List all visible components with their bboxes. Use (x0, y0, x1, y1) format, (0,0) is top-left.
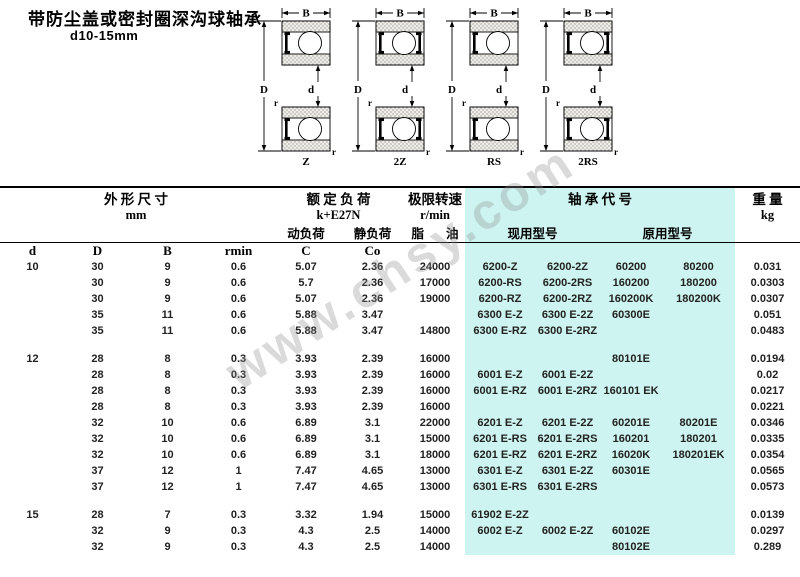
header-col-Co: Co (340, 243, 405, 260)
table-cell (662, 523, 735, 539)
table-cell (405, 307, 465, 323)
table-cell: 0.0354 (735, 447, 800, 463)
fillet-r-label: r (614, 147, 618, 157)
table-cell: 3.1 (340, 431, 405, 447)
table-cell (662, 463, 735, 479)
table-cell: 28 (65, 383, 130, 399)
figure-label: RS (487, 156, 501, 167)
table-row: 2880.33.932.39160000.0221 (0, 399, 800, 415)
table-cell: 3.93 (272, 383, 340, 399)
table-cell (662, 399, 735, 415)
table-cell: 28 (65, 351, 130, 367)
table-cell: 0.0565 (735, 463, 800, 479)
table-cell: 160200K (600, 291, 662, 307)
table-cell: 6201 E-2RS (535, 431, 600, 447)
header-load-unit: k+E27N (272, 208, 405, 223)
table-row: 2880.33.932.39160006001 E-RZ6001 E-2RZ16… (0, 383, 800, 399)
table-cell: 6201 E-RZ (465, 447, 535, 463)
header-letter-row: d D B rmin C Co (0, 243, 800, 260)
table-cell: 5.7 (272, 275, 340, 291)
table-cell: 0.0483 (735, 323, 800, 339)
table-row: 32100.66.893.1180006201 E-RZ6201 E-2RZ16… (0, 447, 800, 463)
table-cell: 15000 (405, 431, 465, 447)
table-cell (535, 539, 600, 555)
table-cell: 2.39 (340, 399, 405, 415)
table-cell: 15 (0, 507, 65, 523)
header-empty-cell (0, 223, 272, 243)
dim-outer-label: D (260, 84, 268, 96)
table-cell: 18000 (405, 447, 465, 463)
table-cell: 9 (130, 275, 205, 291)
table-cell: 3.32 (272, 507, 340, 523)
fillet-r-label: r (556, 98, 560, 108)
table-cell: 4.65 (340, 479, 405, 495)
dim-outer-label: D (448, 84, 456, 96)
table-cell: 2.39 (340, 383, 405, 399)
dim-bore-label: d (308, 84, 314, 96)
figure-lines (258, 8, 330, 151)
header-unit-row: mm k+E27N r/min kg (0, 208, 800, 223)
bearing-table: 外 形 尺 寸 额 定 负 荷 极限转速 轴 承 代 号 重 量 mm k+E2… (0, 186, 800, 555)
table-cell: 9 (130, 539, 205, 555)
header-col-D: D (65, 243, 130, 260)
table-cell: 60200 (600, 259, 662, 275)
table-cell: 60102E (600, 523, 662, 539)
table-cell: 0.3 (205, 383, 272, 399)
table-cell (0, 447, 65, 463)
table-cell (662, 539, 735, 555)
table-cell: 4.65 (340, 463, 405, 479)
table-cell: 0.0297 (735, 523, 800, 539)
table-cell: 32 (65, 431, 130, 447)
table-cell: 0.6 (205, 431, 272, 447)
spacer-row (0, 339, 800, 351)
table-cell: 6300 E-2RZ (535, 323, 600, 339)
table-cell: 6301 E-RS (465, 479, 535, 495)
table-cell: 3.47 (340, 307, 405, 323)
table-cell: 0.3 (205, 367, 272, 383)
table-cell: 6301 E-Z (465, 463, 535, 479)
table-cell: 80201E (662, 415, 735, 431)
table-cell: 60201E (600, 415, 662, 431)
table-cell (0, 291, 65, 307)
table-cell: 11 (130, 323, 205, 339)
table-cell: 32 (65, 523, 130, 539)
table-cell: 7.47 (272, 463, 340, 479)
table-cell: 32 (65, 415, 130, 431)
table-cell: 2.5 (340, 523, 405, 539)
table-cell: 9 (130, 291, 205, 307)
table-cell (662, 507, 735, 523)
table-cell (662, 307, 735, 323)
figure-label: Z (302, 156, 309, 167)
table-cell (600, 323, 662, 339)
table-cell (465, 351, 535, 367)
table-cell: 3.1 (340, 415, 405, 431)
header-code-original: 原用型号 (600, 223, 735, 243)
fillet-r-label: r (368, 98, 372, 108)
bearing-figure: B D d r r 2RS (536, 5, 626, 167)
table-cell (0, 307, 65, 323)
dim-bore-label: d (402, 84, 408, 96)
table-cell: 8 (130, 351, 205, 367)
table-cell: 15000 (405, 507, 465, 523)
spacer-row (0, 495, 800, 507)
table-cell: 10 (130, 447, 205, 463)
header-empty-cell (735, 243, 800, 260)
table-cell: 8 (130, 399, 205, 415)
table-cell: 0.6 (205, 259, 272, 275)
table-cell: 6.89 (272, 431, 340, 447)
table-cell: 0.0573 (735, 479, 800, 495)
table-cell: 13000 (405, 479, 465, 495)
table-cell: 2.36 (340, 291, 405, 307)
table-cell: 32 (65, 447, 130, 463)
table-cell: 3.47 (340, 323, 405, 339)
table-cell: 160200 (600, 275, 662, 291)
header-speed-grease: 脂 (411, 227, 424, 241)
dim-width-label: B (302, 8, 310, 20)
table-cell: 6200-2Z (535, 259, 600, 275)
table-cell (0, 399, 65, 415)
table-cell: 6200-RZ (465, 291, 535, 307)
table-cell: 60301E (600, 463, 662, 479)
table-cell: 0.3 (205, 523, 272, 539)
header-empty-cell (405, 243, 465, 260)
table-cell: 22000 (405, 415, 465, 431)
header-col-B: B (130, 243, 205, 260)
table-cell: 0.6 (205, 307, 272, 323)
figure-label: 2Z (394, 156, 407, 167)
table-cell (0, 415, 65, 431)
header-weight-group: 重 量 (735, 187, 800, 208)
table-cell: 0.0307 (735, 291, 800, 307)
left-shield-icon (473, 33, 479, 140)
header-speed-oil: 油 (446, 227, 459, 241)
table-cell: 0.3 (205, 351, 272, 367)
table-cell: 37 (65, 479, 130, 495)
table-cell: 5.88 (272, 323, 340, 339)
table-cell: 30 (65, 275, 130, 291)
table-cell: 60300E (600, 307, 662, 323)
table-cell: 30 (65, 291, 130, 307)
table-cell (600, 507, 662, 523)
table-cell (535, 399, 600, 415)
header-col-rmin: rmin (205, 243, 272, 260)
table-cell: 3.1 (340, 447, 405, 463)
header-col-C: C (272, 243, 340, 260)
header-col-d: d (0, 243, 65, 260)
table-row: 3090.65.072.36190006200-RZ6200-2RZ160200… (0, 291, 800, 307)
left-shield-icon (379, 33, 385, 140)
table-cell: 6001 E-RZ (465, 383, 535, 399)
table-cell (535, 507, 600, 523)
table-cell: 180200K (662, 291, 735, 307)
table-cell: 28 (65, 399, 130, 415)
fillet-r-label: r (332, 147, 336, 157)
table-cell (0, 539, 65, 555)
right-shield-icon (604, 33, 610, 140)
table-cell: 12 (130, 479, 205, 495)
fillet-r-label: r (462, 98, 466, 108)
table-cell: 6001 E-2RZ (535, 383, 600, 399)
table-cell (662, 351, 735, 367)
table-cell: 12 (130, 463, 205, 479)
table-cell: 0.051 (735, 307, 800, 323)
header-empty-cell (465, 208, 735, 223)
header-weight-unit: kg (735, 208, 800, 223)
table-row: 3290.34.32.5140006002 E-Z6002 E-2Z60102E… (0, 523, 800, 539)
table-cell: 80200 (662, 259, 735, 275)
table-cell: 14800 (405, 323, 465, 339)
table-cell: 0.6 (205, 447, 272, 463)
table-row: 371217.474.65130006301 E-Z6301 E-2Z60301… (0, 463, 800, 479)
table-cell: 4.3 (272, 539, 340, 555)
table-row: 3290.34.32.51400080102E0.289 (0, 539, 800, 555)
table-cell: 0.0139 (735, 507, 800, 523)
header-group-row: 外 形 尺 寸 额 定 负 荷 极限转速 轴 承 代 号 重 量 (0, 187, 800, 208)
table-row: 32100.66.893.1150006201 E-RS6201 E-2RS16… (0, 431, 800, 447)
table-cell: 5.07 (272, 259, 340, 275)
table-cell: 3.93 (272, 367, 340, 383)
table-cell: 61902 E-2Z (465, 507, 535, 523)
table-cell: 80102E (600, 539, 662, 555)
table-cell: 0.0335 (735, 431, 800, 447)
table-cell: 14000 (405, 539, 465, 555)
table-cell: 10 (0, 259, 65, 275)
table-cell: 6201 E-2RZ (535, 447, 600, 463)
table-cell: 0.02 (735, 367, 800, 383)
table-cell: 0.6 (205, 415, 272, 431)
table-cell: 0.3 (205, 507, 272, 523)
dim-width-label: B (490, 8, 498, 20)
left-shield-icon (567, 33, 573, 140)
table-cell: 30 (65, 259, 130, 275)
table-cell (465, 399, 535, 415)
table-cell: 6201 E-RS (465, 431, 535, 447)
table-cell (662, 383, 735, 399)
table-cell: 0.0194 (735, 351, 800, 367)
table-cell: 160201 (600, 431, 662, 447)
table-cell: 0.289 (735, 539, 800, 555)
table-cell: 6200-2RS (535, 275, 600, 291)
bearing-figure: B D d r r 2Z (348, 5, 438, 167)
fillet-r-label: r (426, 147, 430, 157)
table-cell: 0.0221 (735, 399, 800, 415)
table-row: 3090.65.72.36170006200-RS6200-2RS1602001… (0, 275, 800, 291)
table-cell: 2.36 (340, 275, 405, 291)
table-cell: 0.0346 (735, 415, 800, 431)
table-cell: 8 (130, 383, 205, 399)
table-cell: 180201 (662, 431, 735, 447)
table-cell: 180200 (662, 275, 735, 291)
table-cell: 80101E (600, 351, 662, 367)
header-sub-row: 动负荷 静负荷 脂油 现用型号 原用型号 (0, 223, 800, 243)
table-cell (600, 399, 662, 415)
table-cell (600, 367, 662, 383)
table-cell: 10 (130, 431, 205, 447)
table-cell: 10 (130, 415, 205, 431)
table-cell (465, 539, 535, 555)
fillet-r-label: r (274, 98, 278, 108)
header-empty-cell (465, 243, 735, 260)
table-cell: 17000 (405, 275, 465, 291)
table-cell: 16000 (405, 399, 465, 415)
table-cell (0, 275, 65, 291)
table-cell: 2.36 (340, 259, 405, 275)
table-cell: 0.6 (205, 275, 272, 291)
table-row: 152870.33.321.941500061902 E-2Z0.0139 (0, 507, 800, 523)
header-code-current: 现用型号 (465, 223, 600, 243)
table-cell: 5.88 (272, 307, 340, 323)
header-dims-group: 外 形 尺 寸 (0, 187, 272, 208)
table-cell (0, 367, 65, 383)
table-cell (0, 431, 65, 447)
table-cell: 6001 E-Z (465, 367, 535, 383)
table-cell: 6300 E-RZ (465, 323, 535, 339)
table-cell (0, 479, 65, 495)
table-cell (662, 479, 735, 495)
figure-lines (352, 8, 424, 151)
table-cell (0, 323, 65, 339)
table-cell: 6.89 (272, 415, 340, 431)
table-cell: 28 (65, 507, 130, 523)
table-cell: 160101 EK (600, 383, 662, 399)
table-row: 32100.66.893.1220006201 E-Z6201 E-2Z6020… (0, 415, 800, 431)
table-cell: 4.3 (272, 523, 340, 539)
table-cell: 32 (65, 539, 130, 555)
fillet-r-label: r (520, 147, 524, 157)
table-cell: 0.6 (205, 291, 272, 307)
table-cell: 1.94 (340, 507, 405, 523)
header-speed-unit: r/min (405, 208, 465, 223)
header-empty-cell (735, 223, 800, 243)
table-cell: 0.0303 (735, 275, 800, 291)
table-header: 外 形 尺 寸 额 定 负 荷 极限转速 轴 承 代 号 重 量 mm k+E2… (0, 187, 800, 259)
table-cell: 37 (65, 463, 130, 479)
figure-label: 2RS (578, 156, 598, 167)
table-cell: 0.031 (735, 259, 800, 275)
bearing-figure: B D d r r RS (442, 5, 532, 167)
table-cell: 6200-Z (465, 259, 535, 275)
table-cell (0, 383, 65, 399)
dim-bore-label: d (590, 84, 596, 96)
header-load-dynamic: 动负荷 (272, 223, 340, 243)
dim-bore-label: d (496, 84, 502, 96)
figure-lines (540, 8, 612, 151)
table-cell: 0.3 (205, 399, 272, 415)
table-cell: 6.89 (272, 447, 340, 463)
table-cell (535, 351, 600, 367)
table-cell: 6001 E-2Z (535, 367, 600, 383)
header-speed-types: 脂油 (405, 223, 465, 243)
table-cell: 6301 E-2RS (535, 479, 600, 495)
table-cell: 12 (0, 351, 65, 367)
table-row: 371217.474.65130006301 E-RS6301 E-2RS0.0… (0, 479, 800, 495)
table-cell (0, 523, 65, 539)
page-title: 带防尘盖或密封圈深沟球轴承 (28, 5, 262, 30)
dim-width-label: B (396, 8, 404, 20)
header-load-group: 额 定 负 荷 (272, 187, 405, 208)
table-cell: 6201 E-2Z (535, 415, 600, 431)
table-cell: 7.47 (272, 479, 340, 495)
table-cell: 180201EK (662, 447, 735, 463)
header-code-group: 轴 承 代 号 (465, 187, 735, 208)
header-speed-group: 极限转速 (405, 187, 465, 208)
table-cell: 0.3 (205, 539, 272, 555)
table-cell: 35 (65, 307, 130, 323)
table-cell: 8 (130, 367, 205, 383)
table-cell: 2.39 (340, 351, 405, 367)
table-cell: 0.6 (205, 323, 272, 339)
table-cell: 16000 (405, 383, 465, 399)
table-cell: 7 (130, 507, 205, 523)
table-cell: 16000 (405, 367, 465, 383)
table-cell: 16020K (600, 447, 662, 463)
table-cell: 2.39 (340, 367, 405, 383)
table-cell: 9 (130, 259, 205, 275)
table-cell: 24000 (405, 259, 465, 275)
table-cell: 13000 (405, 463, 465, 479)
table-cell: 6002 E-Z (465, 523, 535, 539)
dim-width-label: B (584, 8, 592, 20)
table-cell: 3.93 (272, 399, 340, 415)
table-cell: 1 (205, 463, 272, 479)
bearing-figure: B D d r r Z (254, 5, 344, 167)
table-cell: 2.5 (340, 539, 405, 555)
table-cell: 6200-2RZ (535, 291, 600, 307)
table-row: 35110.65.883.47148006300 E-RZ6300 E-2RZ0… (0, 323, 800, 339)
table-cell (600, 479, 662, 495)
table-row: 2880.33.932.39160006001 E-Z6001 E-2Z0.02 (0, 367, 800, 383)
table-cell: 14000 (405, 523, 465, 539)
table-cell: 6301 E-2Z (535, 463, 600, 479)
header-dims-unit: mm (0, 208, 272, 223)
right-shield-icon (416, 33, 422, 140)
table-cell: 5.07 (272, 291, 340, 307)
table-row: 35110.65.883.476300 E-Z6300 E-2Z60300E0.… (0, 307, 800, 323)
dim-outer-label: D (354, 84, 362, 96)
dim-outer-label: D (542, 84, 550, 96)
table-cell: 35 (65, 323, 130, 339)
table-cell: 19000 (405, 291, 465, 307)
table-cell: 11 (130, 307, 205, 323)
table-row: 103090.65.072.36240006200-Z6200-2Z602008… (0, 259, 800, 275)
left-shield-icon (285, 33, 291, 140)
page-subtitle: d10-15mm (70, 28, 138, 43)
table-cell: 6200-RS (465, 275, 535, 291)
figure-lines (446, 8, 518, 151)
table-body: 103090.65.072.36240006200-Z6200-2Z602008… (0, 259, 800, 555)
table-cell (662, 367, 735, 383)
table-cell: 28 (65, 367, 130, 383)
bearing-figures: B D d r r Z (254, 5, 626, 167)
table-cell: 6300 E-Z (465, 307, 535, 323)
table-cell: 6201 E-Z (465, 415, 535, 431)
table-cell: 9 (130, 523, 205, 539)
table-cell: 3.93 (272, 351, 340, 367)
table-cell: 6300 E-2Z (535, 307, 600, 323)
table-cell: 1 (205, 479, 272, 495)
table-cell (0, 463, 65, 479)
table-row: 122880.33.932.391600080101E0.0194 (0, 351, 800, 367)
table-cell: 16000 (405, 351, 465, 367)
header-load-static: 静负荷 (340, 223, 405, 243)
catalog-page: 带防尘盖或密封圈深沟球轴承 d10-15mm (0, 0, 800, 577)
table-cell: 0.0217 (735, 383, 800, 399)
table-cell: 6002 E-2Z (535, 523, 600, 539)
table-cell (662, 323, 735, 339)
